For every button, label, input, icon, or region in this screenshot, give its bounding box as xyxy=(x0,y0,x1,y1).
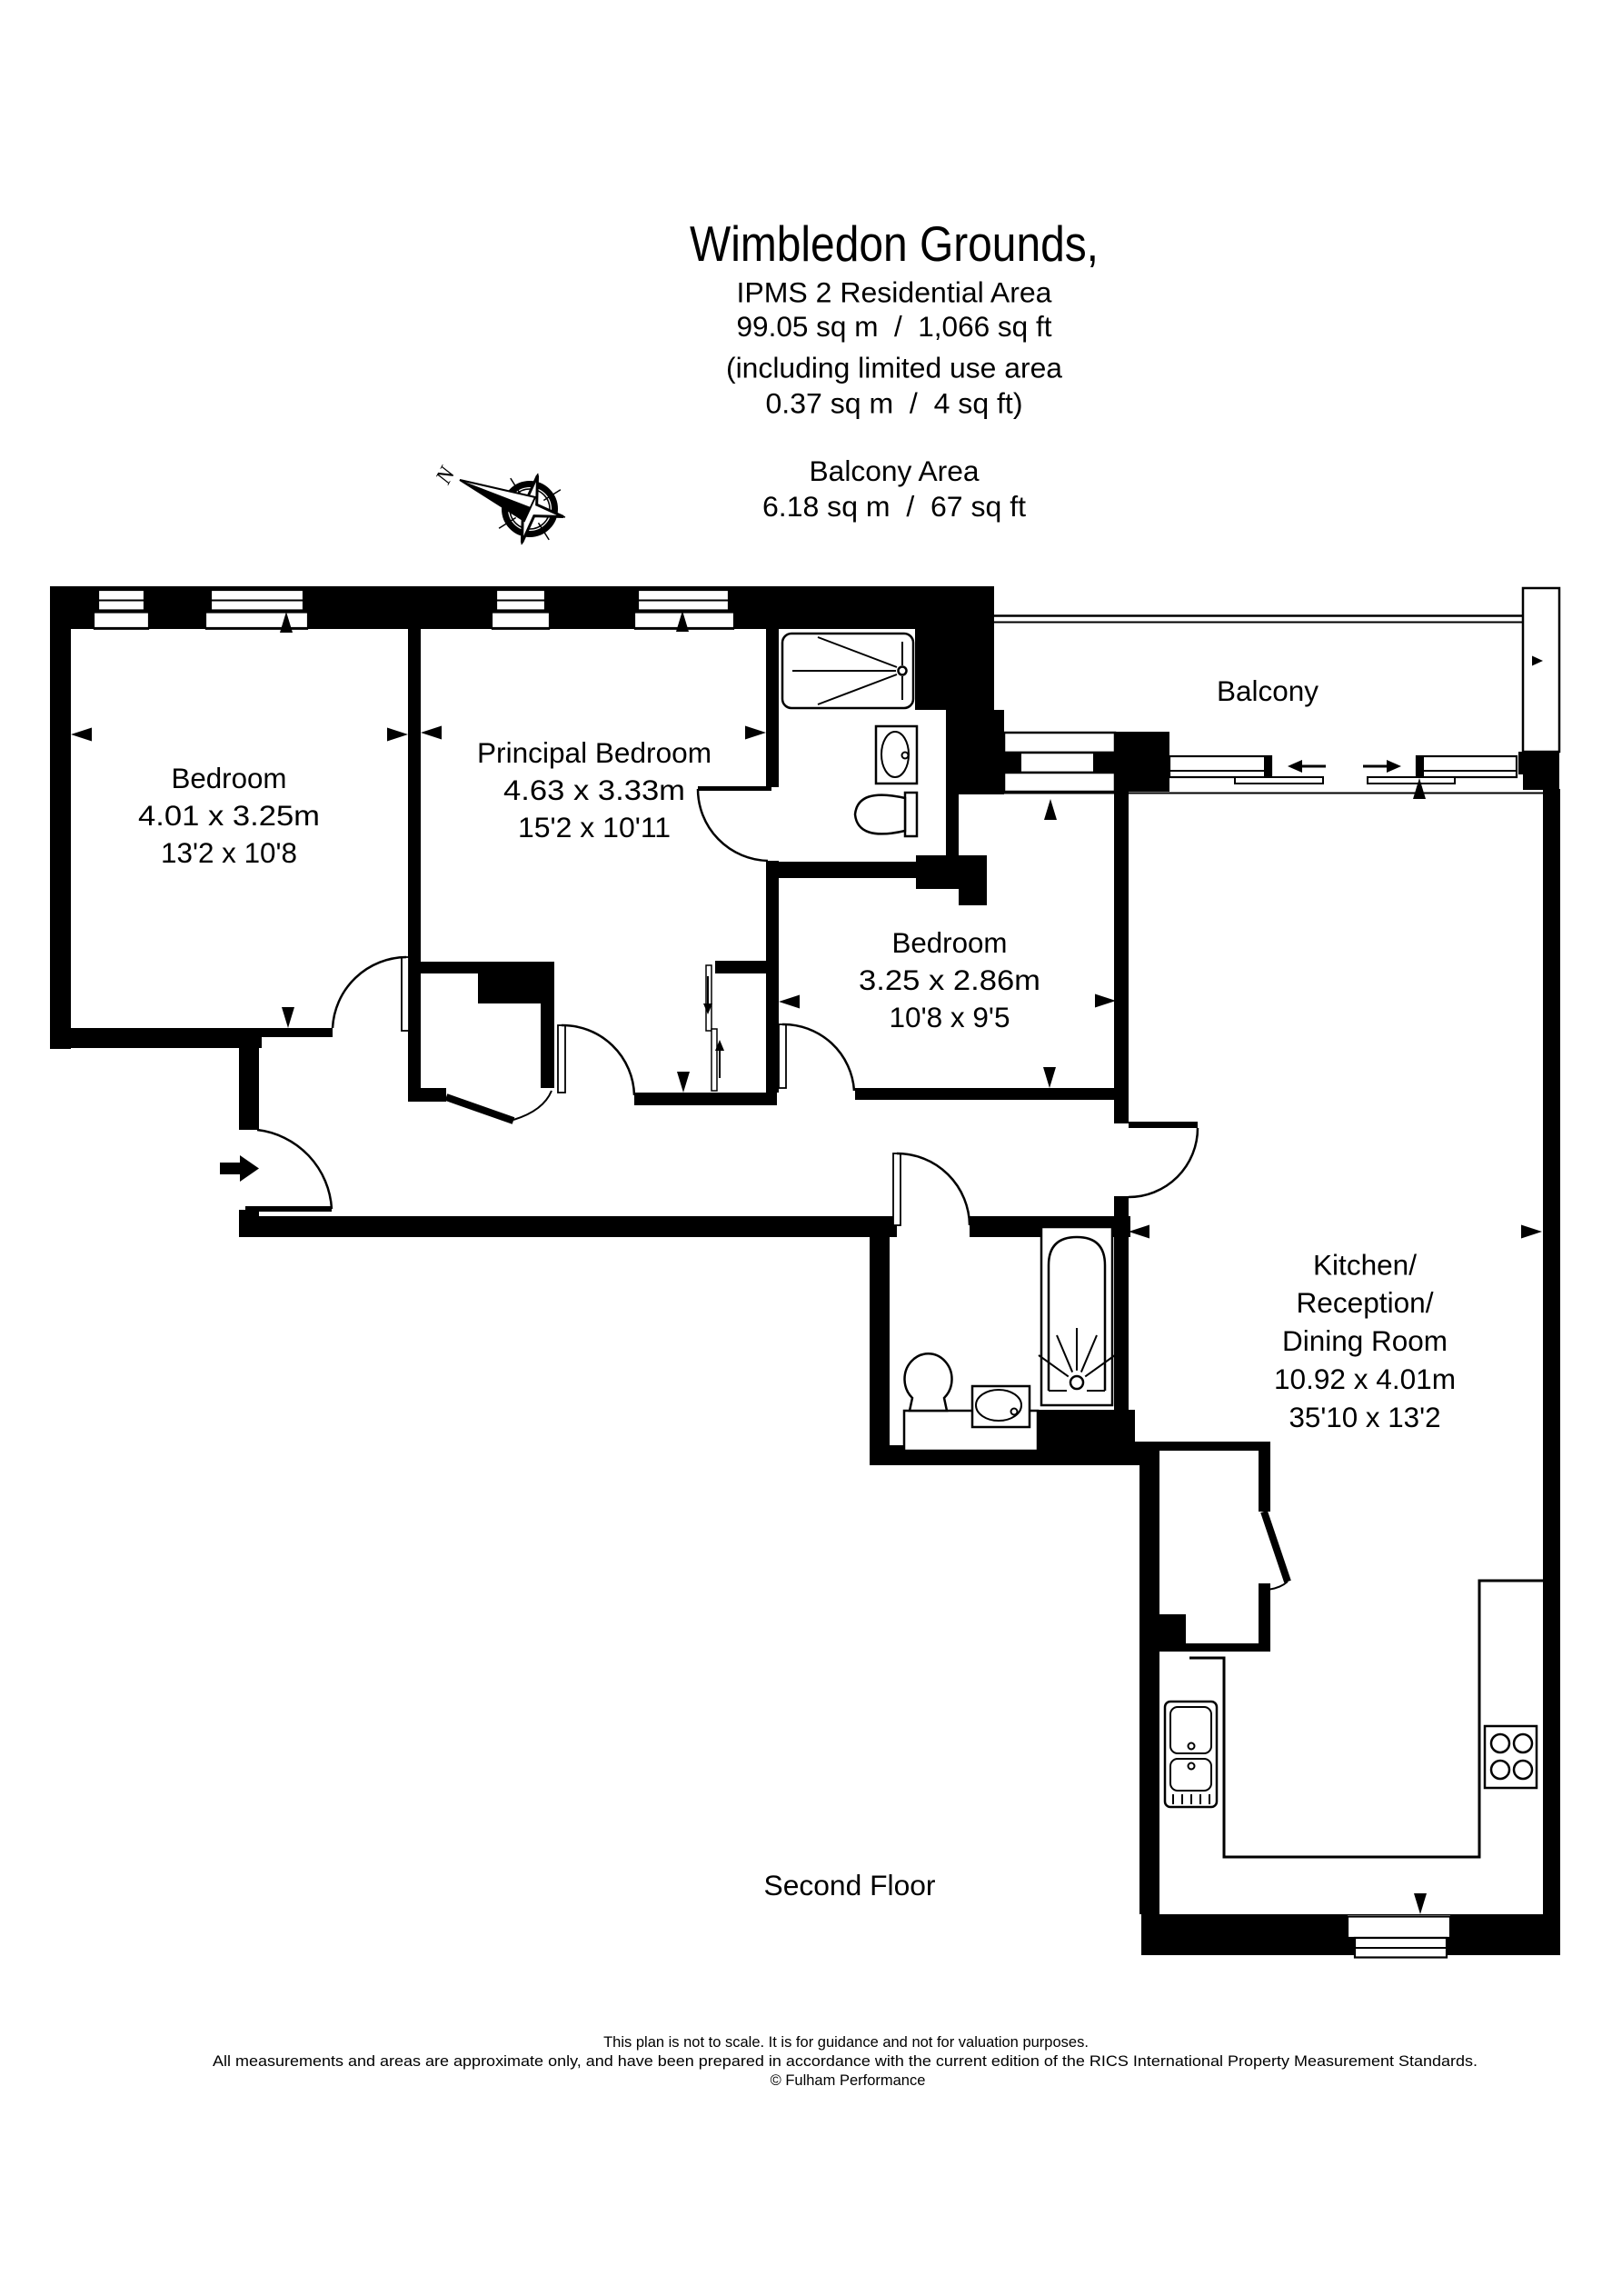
svg-text:IPMS 2 Residential Area: IPMS 2 Residential Area xyxy=(737,276,1052,309)
svg-text:0.37 sq m / 4 sq ft): 0.37 sq m / 4 sq ft) xyxy=(766,387,1023,420)
svg-text:Kitchen/: Kitchen/ xyxy=(1313,1249,1417,1282)
svg-text:Principal Bedroom: Principal Bedroom xyxy=(477,736,711,769)
svg-text:4.63 x 3.33m: 4.63 x 3.33m xyxy=(503,774,685,806)
svg-text:© Fulham Performance: © Fulham Performance xyxy=(771,2072,926,2089)
svg-text:4.01 x 3.25m: 4.01 x 3.25m xyxy=(138,799,320,832)
svg-text:10'8 x 9'5: 10'8 x 9'5 xyxy=(890,1001,1010,1033)
svg-text:13'2 x 10'8: 13'2 x 10'8 xyxy=(161,836,297,869)
svg-text:Second Floor: Second Floor xyxy=(764,1869,936,1902)
svg-text:Balcony: Balcony xyxy=(1217,674,1318,707)
svg-text:Bedroom: Bedroom xyxy=(172,762,287,794)
svg-text:15'2 x 10'11: 15'2 x 10'11 xyxy=(518,811,671,844)
svg-text:Reception/: Reception/ xyxy=(1297,1286,1434,1319)
svg-text:3.25 x 2.86m: 3.25 x 2.86m xyxy=(859,963,1040,996)
svg-text:(including limited use area: (including limited use area xyxy=(726,351,1062,384)
svg-text:All measurements and areas are: All measurements and areas are approxima… xyxy=(213,2053,1478,2070)
svg-text:35'10 x 13'2: 35'10 x 13'2 xyxy=(1289,1401,1441,1433)
svg-text:10.92 x 4.01m: 10.92 x 4.01m xyxy=(1274,1363,1456,1395)
svg-text:This plan is not to scale. It: This plan is not to scale. It is for gui… xyxy=(603,2034,1089,2051)
svg-text:Bedroom: Bedroom xyxy=(892,926,1008,959)
svg-text:Dining Room: Dining Room xyxy=(1282,1324,1448,1357)
svg-text:6.18 sq m / 67 sq ft: 6.18 sq m / 67 sq ft xyxy=(762,490,1026,523)
svg-text:99.05 sq m / 1,066 sq ft: 99.05 sq m / 1,066 sq ft xyxy=(737,310,1052,343)
svg-text:Wimbledon Grounds,: Wimbledon Grounds, xyxy=(690,215,1099,272)
svg-text:Balcony Area: Balcony Area xyxy=(810,454,980,487)
